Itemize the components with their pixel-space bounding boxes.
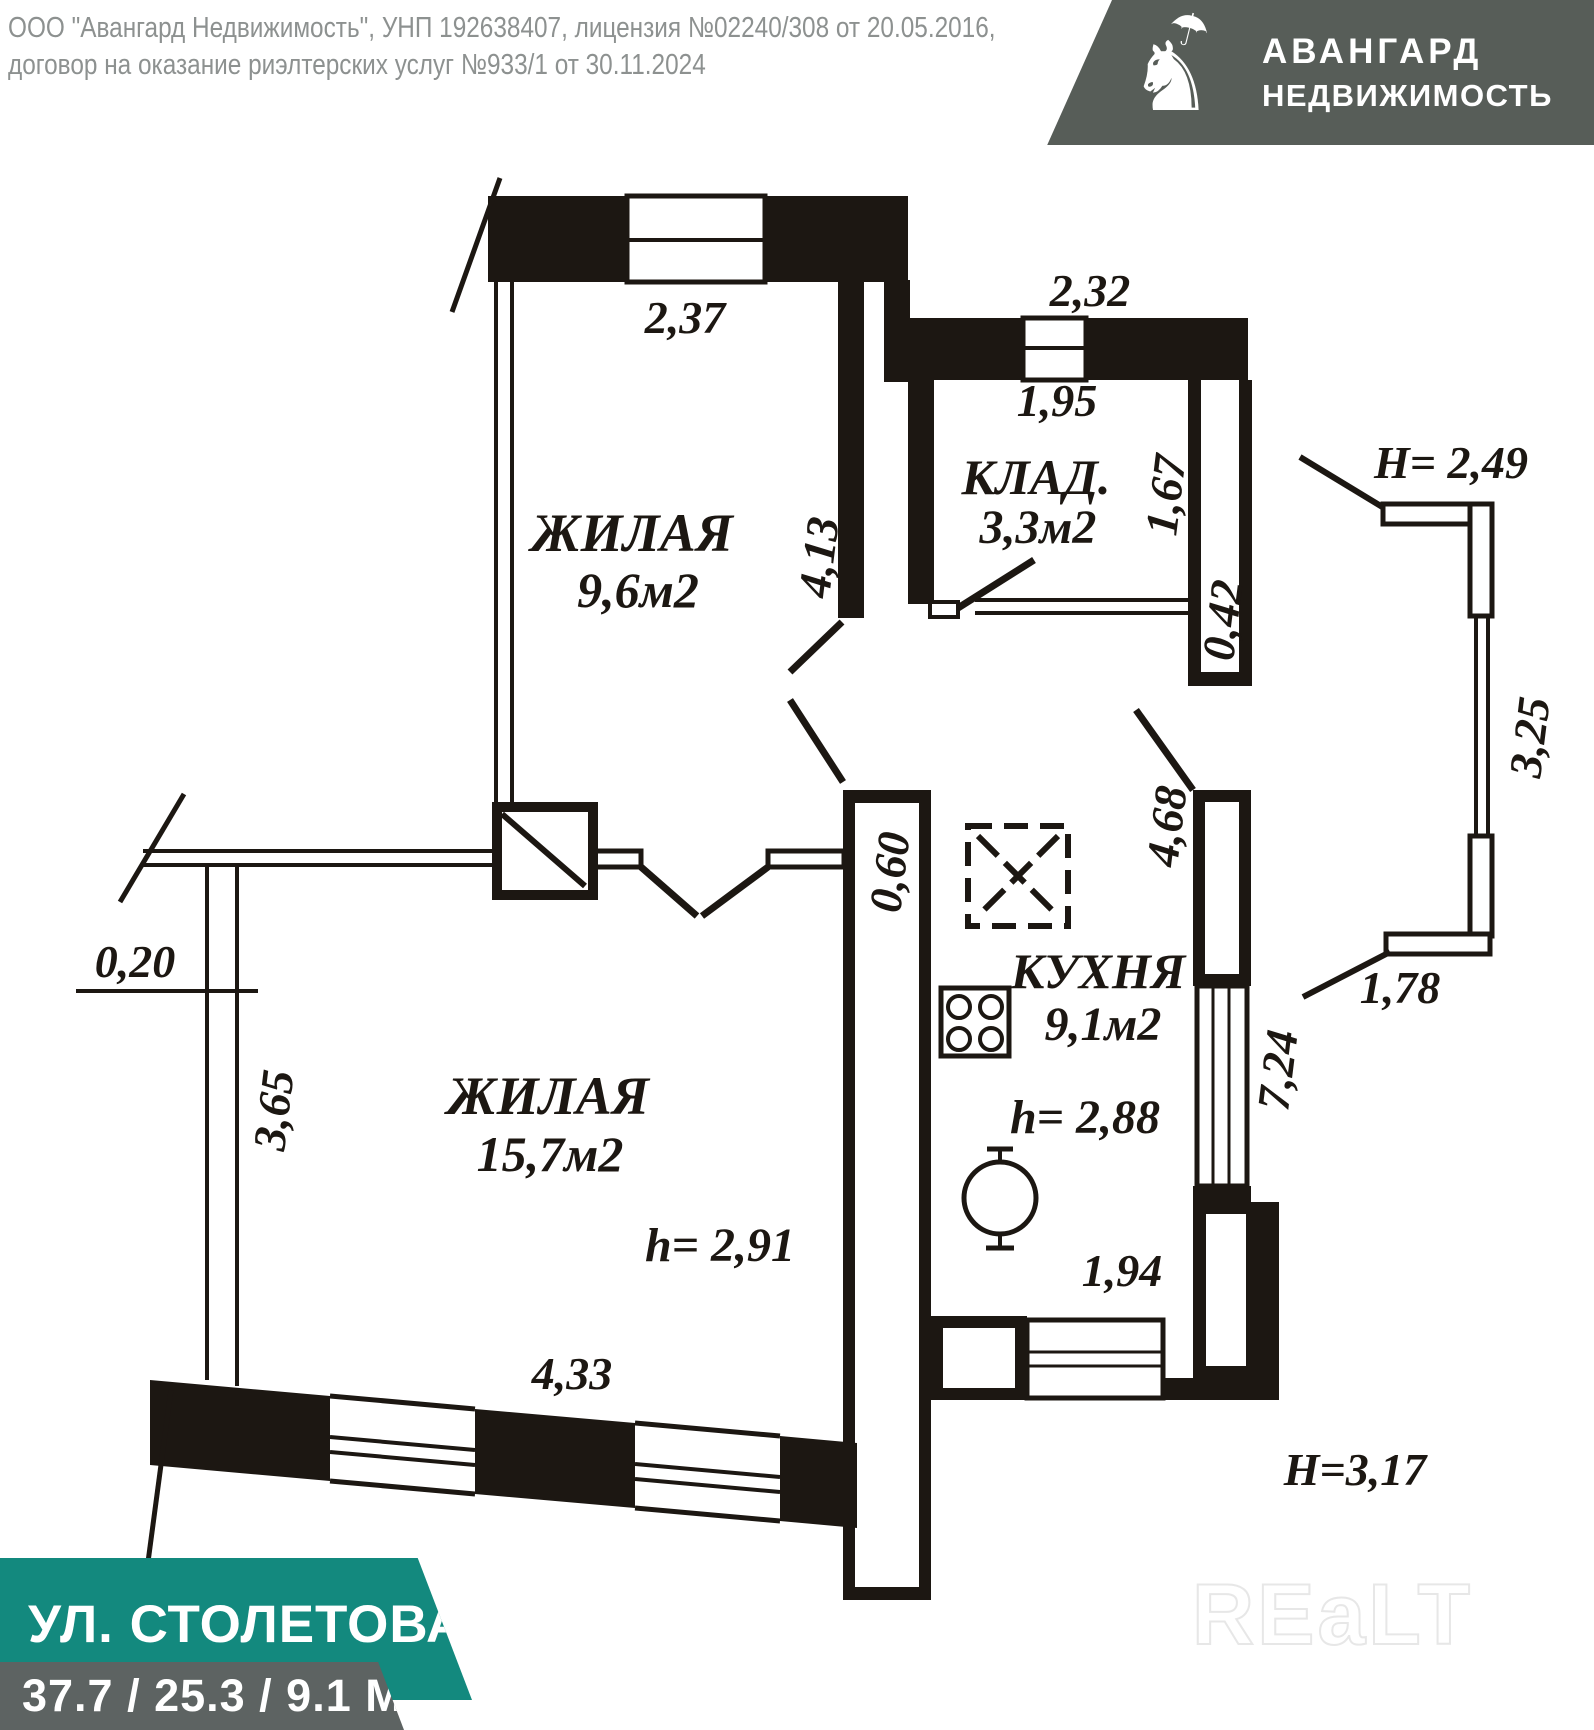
dim-h-2-49: H= 2,49 bbox=[1373, 437, 1528, 488]
dim-1-67: 1,67 bbox=[1135, 450, 1196, 538]
kitchen-area: 9,1м2 bbox=[1045, 998, 1162, 1051]
living1-name: ЖИЛАЯ bbox=[527, 503, 735, 563]
dim-2-37: 2,37 bbox=[644, 292, 728, 343]
dim-0-20: 0,20 bbox=[95, 936, 176, 987]
dim-3-25: 3,25 bbox=[1499, 694, 1560, 781]
dim-0-42: 0,42 bbox=[1192, 577, 1252, 663]
living1-area: 9,6м2 bbox=[577, 562, 699, 618]
living2-ceiling-height: h= 2,91 bbox=[645, 1219, 795, 1272]
stove-icon bbox=[941, 988, 1009, 1056]
dim-3-65: 3,65 bbox=[243, 1067, 304, 1154]
vent-shaft-icon bbox=[968, 826, 1068, 926]
kitchen-name: КУХНЯ bbox=[1010, 943, 1187, 999]
kitchen-ceiling-height: h= 2,88 bbox=[1010, 1091, 1160, 1144]
dim-1-95: 1,95 bbox=[1017, 375, 1098, 426]
dimension-labels: 2,37 2,32 1,95 1,67 0,42 H= 2,49 3,25 4,… bbox=[95, 265, 1560, 1495]
floor-plan-drawing: ЖИЛАЯ 9,6м2 КЛАД. 3,3м2 ЖИЛАЯ 15,7м2 h= … bbox=[0, 0, 1594, 1730]
living2-name: ЖИЛАЯ bbox=[443, 1066, 651, 1126]
dim-4-13: 4,13 bbox=[788, 514, 849, 601]
areas-text: 37.7 / 25.3 / 9.1 М2 bbox=[22, 1670, 430, 1722]
living2-area: 15,7м2 bbox=[477, 1126, 624, 1182]
boiler-icon bbox=[964, 1149, 1036, 1248]
storage-area: 3,3м2 bbox=[979, 501, 1097, 554]
storage-name: КЛАД. bbox=[961, 449, 1111, 505]
dim-h-3-17: H=3,17 bbox=[1283, 1444, 1428, 1495]
dim-1-94: 1,94 bbox=[1082, 1245, 1163, 1296]
chimney-icon bbox=[497, 807, 593, 895]
dim-2-32: 2,32 bbox=[1049, 265, 1131, 316]
dim-4-33: 4,33 bbox=[531, 1348, 613, 1399]
porch-outline bbox=[1300, 457, 1492, 997]
realt-watermark: REaLT bbox=[1192, 1566, 1473, 1665]
flyer-page: ООО "Авангард Недвижимость", УНП 1926384… bbox=[0, 0, 1594, 1730]
dim-4-68: 4,68 bbox=[1136, 783, 1197, 870]
dim-1-78: 1,78 bbox=[1360, 962, 1441, 1013]
dim-0-60: 0,60 bbox=[859, 829, 919, 915]
areas-banner: 37.7 / 25.3 / 9.1 М2 bbox=[0, 1662, 404, 1730]
dim-7-24: 7,24 bbox=[1247, 1027, 1307, 1113]
